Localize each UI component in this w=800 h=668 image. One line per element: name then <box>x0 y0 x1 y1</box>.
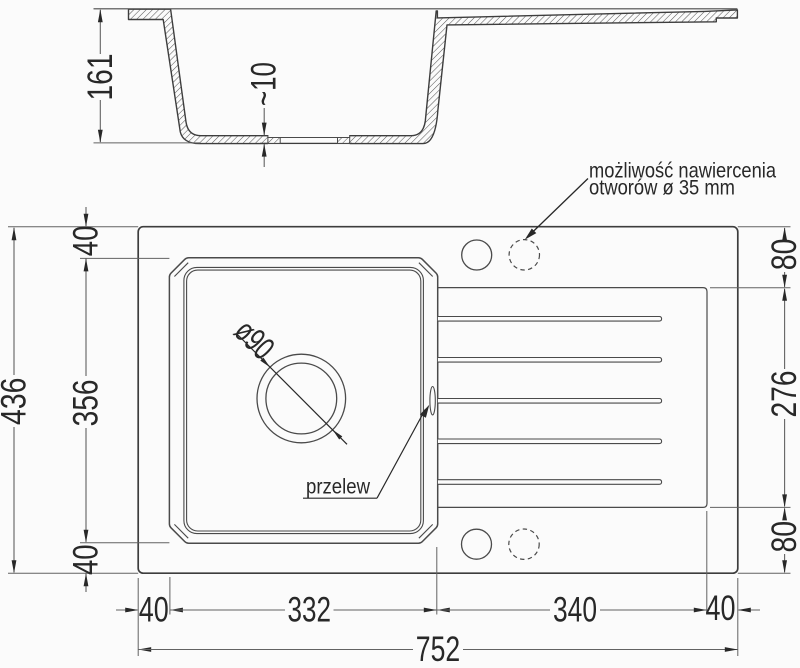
svg-text:przelew: przelew <box>306 475 370 499</box>
svg-text:436: 436 <box>0 378 34 425</box>
svg-text:~10: ~10 <box>245 62 284 106</box>
svg-text:80: 80 <box>765 521 800 553</box>
svg-text:40: 40 <box>67 226 106 257</box>
svg-text:340: 340 <box>553 591 597 630</box>
svg-text:40: 40 <box>706 589 736 628</box>
svg-text:332: 332 <box>288 591 332 630</box>
svg-text:otworów ø 35 mm: otworów ø 35 mm <box>589 176 735 200</box>
svg-text:276: 276 <box>765 371 800 418</box>
svg-text:752: 752 <box>416 630 460 668</box>
svg-text:356: 356 <box>67 379 106 426</box>
svg-text:161: 161 <box>81 54 120 101</box>
svg-text:80: 80 <box>765 239 800 271</box>
svg-text:40: 40 <box>139 591 169 630</box>
svg-text:40: 40 <box>67 544 106 575</box>
